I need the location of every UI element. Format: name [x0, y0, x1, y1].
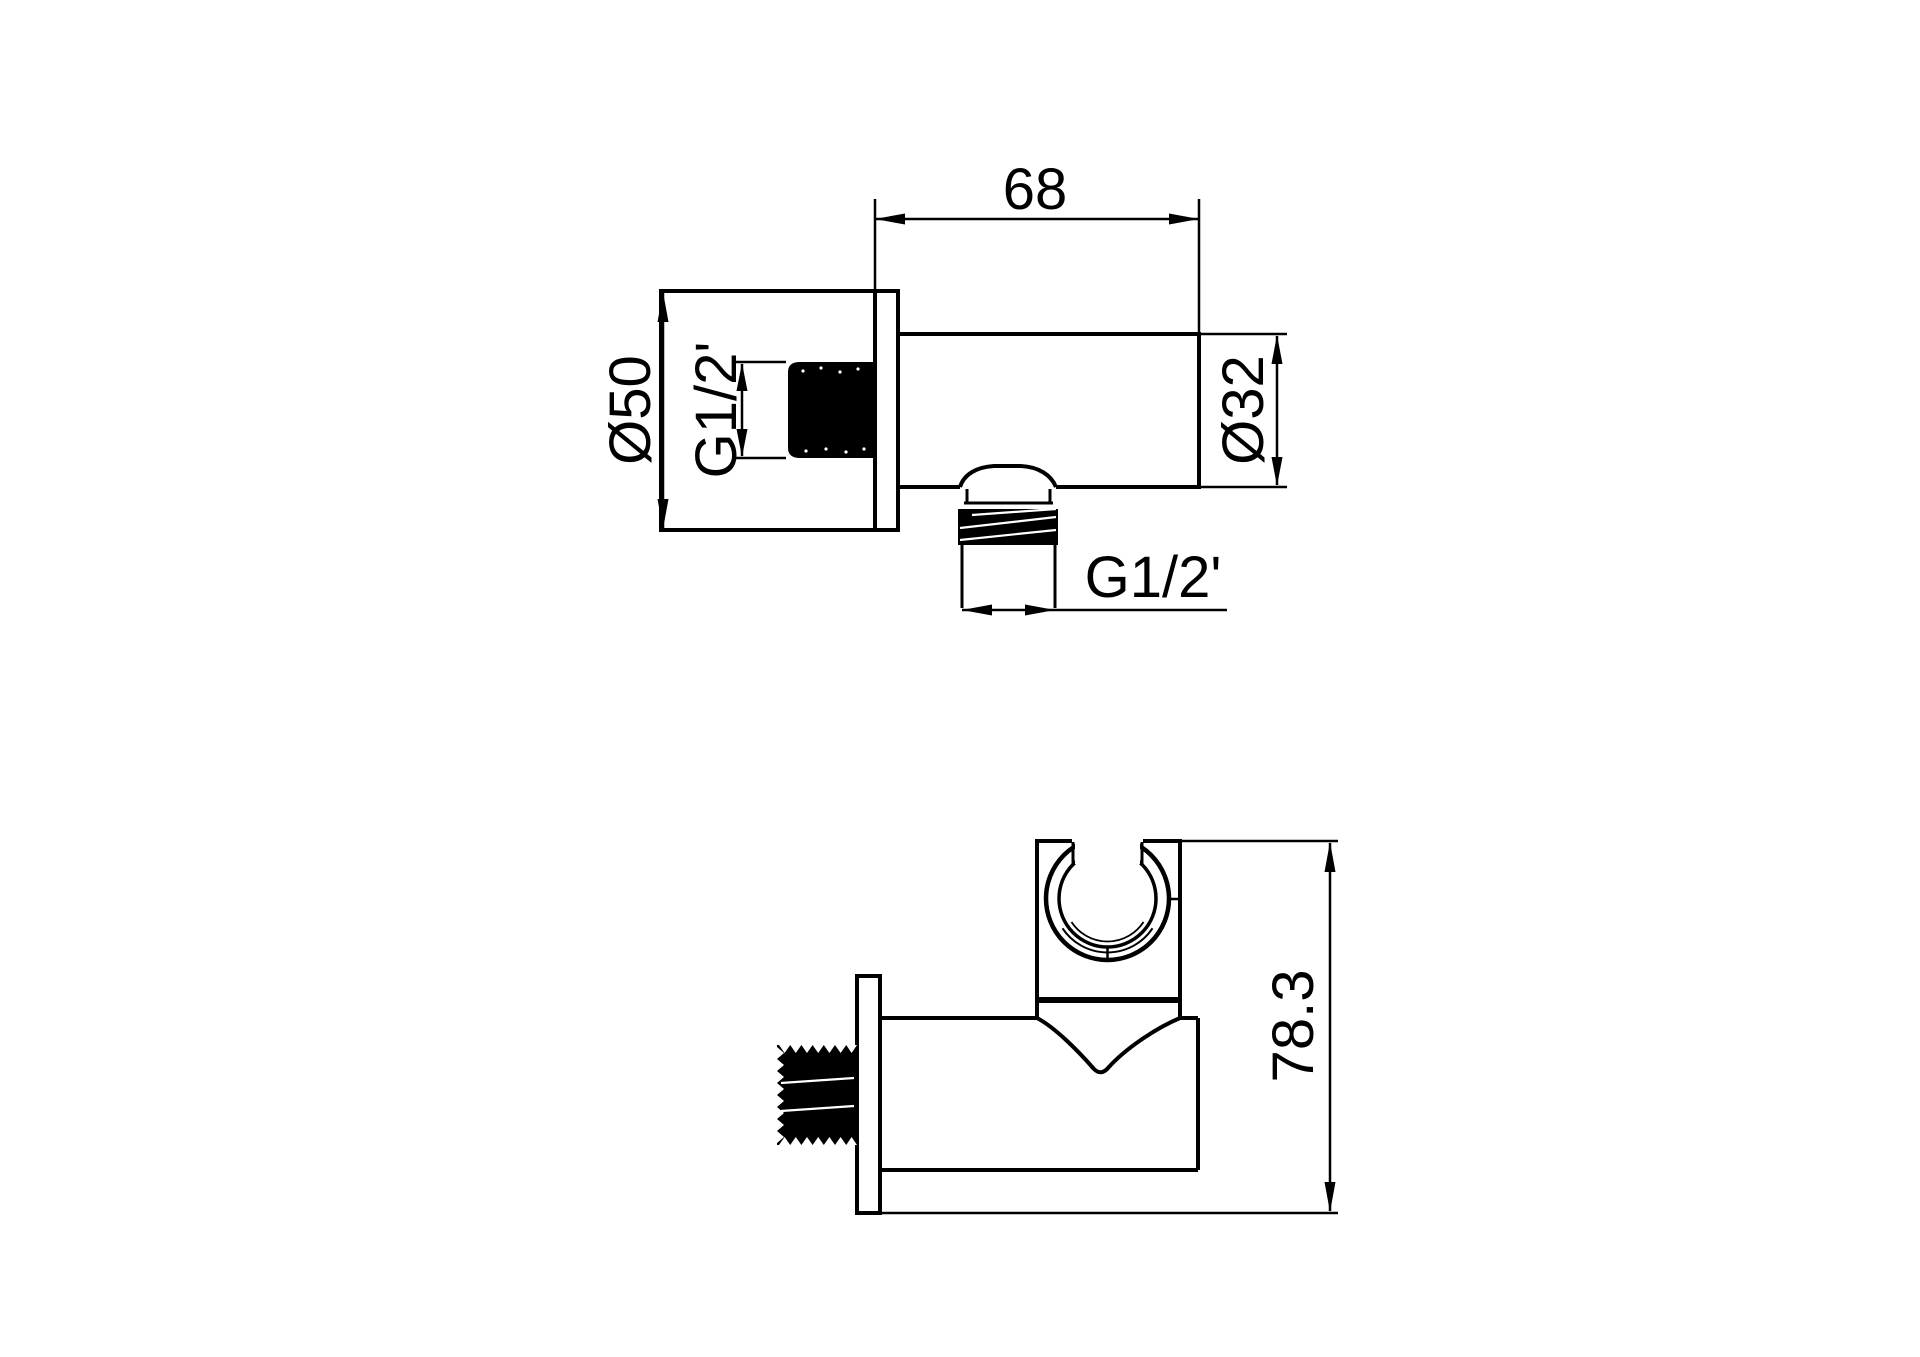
nipple-thread-block — [777, 1045, 857, 1145]
dim-label-body-diameter: Ø32 — [1211, 355, 1276, 465]
front-view: 78.3 — [777, 826, 1338, 1213]
dim-body-diameter: Ø32 — [1199, 334, 1287, 487]
dimension-arrowhead — [1325, 1182, 1336, 1212]
outlet-collar — [964, 489, 1053, 503]
outlet-tip-walls — [962, 545, 1055, 608]
body-cylinder — [898, 334, 1199, 487]
holder-body-transition-curve — [1037, 1018, 1180, 1072]
dim-label-flange-diameter: Ø50 — [598, 355, 663, 465]
dimension-arrowhead — [962, 605, 992, 616]
dim-body-length: 68 — [875, 157, 1199, 334]
nipple-thread-block — [788, 362, 873, 458]
dimension-arrowhead — [1025, 605, 1055, 616]
clamp-opening-mask — [1075, 826, 1140, 864]
outlet-shoulder-dome — [960, 466, 1056, 487]
dimension-arrowhead — [1169, 214, 1199, 225]
dim-label-outlet-thread: G1/2' — [1085, 545, 1222, 610]
body-front — [880, 1018, 1198, 1170]
dim-overall-height: 78.3 — [882, 841, 1338, 1213]
drawing-page: 68 Ø50 G1/2' Ø32 G1/2' — [0, 0, 1920, 1357]
wall-plate-outline — [857, 976, 880, 1213]
handshower-holder — [1037, 826, 1180, 1018]
dimension-arrowhead — [875, 214, 905, 225]
dim-outlet-thread: G1/2' — [962, 545, 1227, 616]
wall-thread-nipple — [788, 362, 873, 458]
dim-flange-diameter: Ø50 — [598, 292, 669, 529]
wall-thread-nipple-front — [777, 1045, 857, 1145]
wall-plate — [857, 976, 880, 1213]
dim-label-wall-thread: G1/2' — [684, 342, 749, 479]
dim-label-body-length: 68 — [1003, 157, 1068, 222]
outlet-stub — [958, 466, 1058, 608]
holder-clamp-ring — [1046, 826, 1180, 960]
dim-label-overall-height: 78.3 — [1261, 970, 1326, 1083]
body-front-outline — [880, 1018, 1198, 1170]
dimension-arrowhead — [1325, 842, 1336, 872]
dim-wall-thread: G1/2' — [684, 342, 786, 479]
body-outline — [898, 334, 1199, 487]
side-view: 68 Ø50 G1/2' Ø32 G1/2' — [598, 157, 1287, 616]
technical-drawing: 68 Ø50 G1/2' Ø32 G1/2' — [0, 0, 1920, 1357]
